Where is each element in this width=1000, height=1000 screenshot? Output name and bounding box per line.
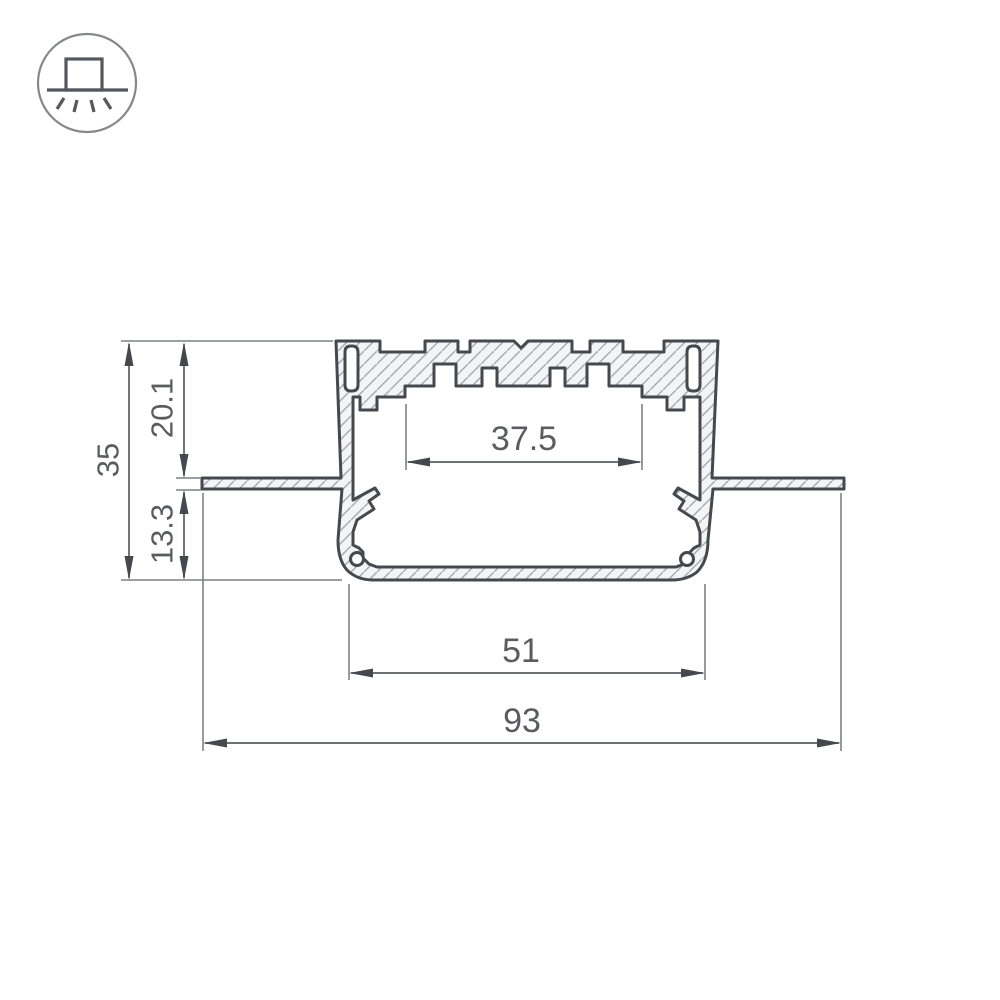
recessed-mount-icon — [38, 34, 136, 132]
arrow-left — [349, 669, 373, 678]
icon-fixture-box — [66, 59, 102, 90]
dimension-overall-height: 35 — [91, 342, 134, 580]
screw-port-right — [681, 553, 694, 566]
arrow-right — [618, 458, 642, 467]
icon-light-rays — [57, 98, 111, 112]
arrow-down — [180, 556, 189, 580]
dim-label-35: 35 — [91, 443, 126, 477]
arrow-left — [203, 739, 227, 748]
arrow-up — [125, 342, 134, 366]
dim-label-13-3: 13.3 — [145, 504, 180, 564]
dimension-inner-width: 37.5 — [406, 420, 642, 467]
dim-label-20-1: 20.1 — [145, 378, 180, 438]
extension-lines — [121, 341, 841, 751]
profile-body — [202, 341, 844, 580]
technical-drawing-page: 35 20.1 13.3 37.5 51 — [0, 0, 1000, 1000]
arrow-down — [180, 454, 189, 478]
arrow-down — [125, 556, 134, 580]
dimension-overall-width: 93 — [203, 702, 841, 748]
arrow-up — [180, 342, 189, 366]
dim-label-93: 93 — [503, 702, 541, 740]
arrow-left — [406, 458, 430, 467]
arrow-up — [180, 490, 189, 514]
dim-label-37-5: 37.5 — [491, 420, 557, 458]
dimension-upper-depth: 20.1 — [145, 342, 189, 478]
arrow-right — [817, 739, 841, 748]
dimension-body-width: 51 — [349, 632, 705, 678]
dimension-lower-depth: 13.3 — [145, 490, 189, 580]
icon-circle — [38, 34, 136, 132]
profile-cross-section — [202, 341, 844, 580]
dim-label-51: 51 — [502, 632, 540, 670]
arrow-right — [681, 669, 705, 678]
screw-port-left — [351, 553, 364, 566]
drawing-canvas: 35 20.1 13.3 37.5 51 — [0, 0, 1000, 1000]
